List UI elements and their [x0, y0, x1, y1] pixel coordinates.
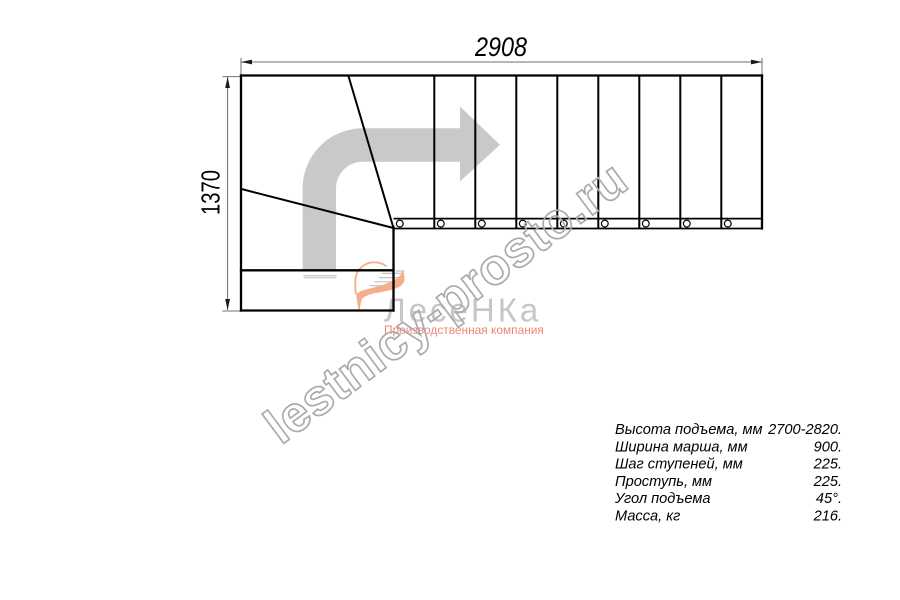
- svg-text:Угол подъема: Угол подъема: [614, 491, 710, 507]
- svg-text:Проступь, мм: Проступь, мм: [615, 474, 712, 490]
- svg-text:900.: 900.: [814, 439, 842, 455]
- svg-text:Шаг ступеней, мм: Шаг ступеней, мм: [615, 457, 743, 473]
- svg-text:Высота подъема, мм: Высота подъема, мм: [615, 422, 763, 438]
- svg-text:1370: 1370: [196, 170, 226, 215]
- svg-text:Ширина марша, мм: Ширина марша, мм: [615, 439, 748, 455]
- svg-text:225.: 225.: [813, 457, 842, 473]
- svg-text:216.: 216.: [813, 508, 842, 524]
- svg-text:2700-2820.: 2700-2820.: [767, 422, 842, 438]
- svg-text:Масса, кг: Масса, кг: [615, 508, 680, 524]
- svg-text:225.: 225.: [813, 474, 842, 490]
- svg-text:45°.: 45°.: [816, 491, 842, 507]
- svg-text:2908: 2908: [474, 32, 527, 62]
